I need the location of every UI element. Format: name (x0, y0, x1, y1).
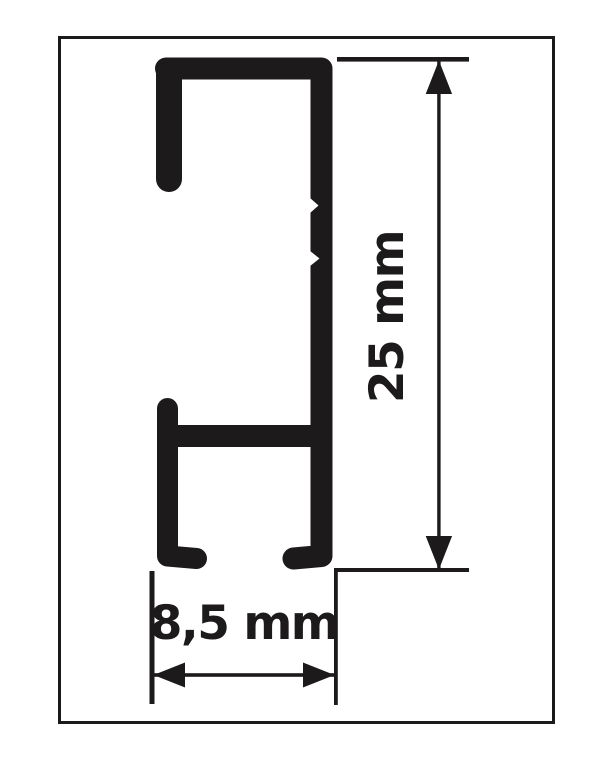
width-arrow-right-icon (303, 663, 335, 688)
height-top-extension-line (337, 57, 469, 62)
height-arrow-up-icon (426, 61, 452, 95)
height-dimension-line (437, 60, 440, 568)
height-arrow-down-icon (426, 536, 452, 570)
width-arrow-left-icon (154, 663, 186, 688)
width-dimension-label: 8,5 mm (150, 596, 339, 651)
rail-profile-diagram: 25 mm 8,5 mm (0, 0, 605, 760)
profile-top-and-right-wall (166, 69, 322, 559)
height-dimension-label: 25 mm (360, 231, 415, 403)
rail-profile-cross-section (166, 69, 322, 559)
drawing-canvas: 25 mm 8,5 mm (0, 0, 605, 760)
height-bottom-extension-line (334, 568, 469, 572)
